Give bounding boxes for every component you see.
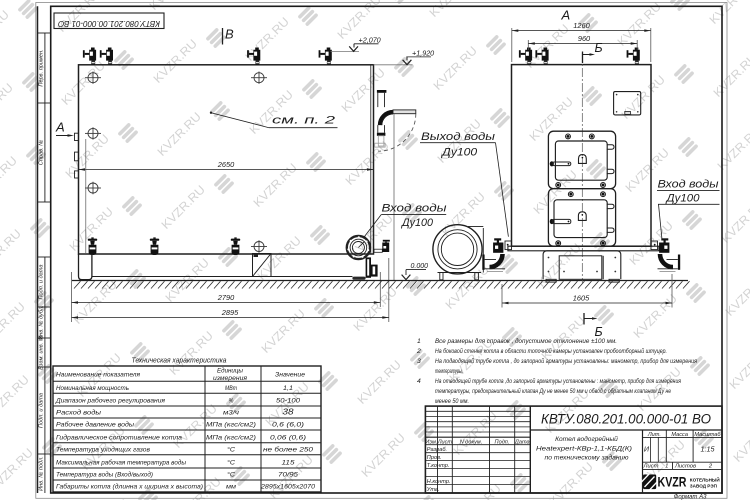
svg-text:Формат А3: Формат А3 [674, 494, 707, 500]
svg-text:0,06 (0,6): 0,06 (0,6) [270, 435, 306, 442]
svg-text:Масса: Масса [671, 432, 688, 438]
svg-text:115: 115 [282, 460, 295, 467]
svg-text:50-100: 50-100 [276, 398, 300, 405]
svg-text:В: В [225, 27, 234, 42]
svg-text:Т.контр.: Т.контр. [427, 463, 450, 469]
svg-text:Значение: Значение [275, 372, 305, 379]
svg-text:Н.контр.: Н.контр. [427, 479, 451, 485]
svg-text:Взам. инв. №: Взам. инв. № [38, 335, 44, 370]
svg-text:Масштаб: Масштаб [694, 432, 721, 438]
svg-text:мм: мм [226, 484, 236, 491]
svg-text:1:15: 1:15 [701, 445, 716, 454]
svg-text:А: А [55, 120, 65, 135]
svg-text:2: 2 [416, 348, 421, 355]
svg-text:Лист: Лист [437, 439, 453, 445]
svg-text:по техническому заданию: по техническому заданию [545, 454, 629, 462]
svg-text:Подп. и дата: Подп. и дата [38, 264, 44, 299]
svg-text:температуры.: температуры. [435, 368, 463, 375]
svg-text:1: 1 [417, 338, 421, 345]
svg-text:Гидравлическое сопротивление к: Гидравлическое сопротивление котла [56, 434, 182, 442]
svg-text:%: % [229, 398, 234, 405]
svg-text:Все размеры для справок , допу: Все размеры для справок , допустимое отк… [435, 337, 617, 345]
svg-text:Дата: Дата [514, 439, 530, 445]
svg-text:0,6 (6,0): 0,6 (6,0) [272, 422, 304, 429]
svg-text:КВТУ.080.201.00.000-01 ВО: КВТУ.080.201.00.000-01 ВО [58, 19, 160, 29]
svg-text:Пров.: Пров. [427, 455, 442, 461]
svg-text:Котел водогрейный: Котел водогрейный [555, 435, 618, 443]
svg-text:Рабочее давление воды: Рабочее давление воды [56, 421, 134, 429]
svg-text:Утв.: Утв. [426, 487, 440, 493]
svg-text:+2,070: +2,070 [359, 35, 381, 44]
svg-text:3: 3 [417, 358, 421, 365]
svg-text:70/95: 70/95 [278, 472, 298, 479]
svg-text:не более 250: не более 250 [263, 446, 313, 454]
svg-text:см. п. 2: см. п. 2 [272, 115, 335, 127]
svg-text:Подп. и дата: Подп. и дата [38, 393, 44, 428]
svg-text:Вход воды: Вход воды [658, 178, 719, 190]
svg-text:Выход воды: Выход воды [421, 131, 495, 143]
svg-text:°С: °С [227, 471, 235, 479]
svg-text:2650: 2650 [217, 160, 235, 169]
svg-text:N докум.: N докум. [460, 439, 483, 445]
svg-text:Лист: Лист [643, 464, 659, 470]
svg-text:1,1: 1,1 [283, 385, 293, 392]
svg-text:+1,920: +1,920 [412, 48, 434, 57]
svg-text:Изм.: Изм. [425, 439, 437, 445]
svg-text:Единицы: Единицы [217, 367, 243, 375]
svg-text:Диапазон рабочего регулировани: Диапазон рабочего регулирования [55, 397, 165, 405]
svg-text:Лит.: Лит. [647, 432, 661, 438]
svg-text:КВТУ.080.201.00.000-01 ВО: КВТУ.080.201.00.000-01 ВО [541, 412, 711, 427]
svg-text:0.000: 0.000 [411, 263, 429, 270]
svg-text:Техническая характеристика: Техническая характеристика [132, 355, 227, 364]
svg-text:Расход воды: Расход воды [56, 409, 101, 417]
svg-text:KVZR: KVZR [658, 474, 687, 489]
svg-text:м3/ч: м3/ч [223, 410, 240, 417]
svg-text:°С: °С [227, 459, 235, 467]
svg-text:Наименование показателя: Наименование показателя [56, 372, 140, 379]
svg-text:Ду100: Ду100 [664, 192, 700, 204]
svg-text:МВт: МВт [225, 385, 237, 392]
svg-text:Температура уходящих газов: Температура уходящих газов [56, 446, 150, 454]
svg-text:Номинальная мощность: Номинальная мощность [56, 385, 129, 392]
svg-text:Б: Б [595, 41, 603, 55]
svg-text:ЗАВОД РЭП: ЗАВОД РЭП [690, 484, 717, 489]
svg-text:На боковой стенке котла в обла: На боковой стенке котла в области топочн… [435, 347, 667, 355]
svg-text:2790: 2790 [217, 293, 235, 302]
svg-text:Heatexpert-КВр-1,1-КБД(К): Heatexpert-КВр-1,1-КБД(К) [536, 445, 632, 452]
svg-text:1605: 1605 [573, 293, 590, 302]
svg-text:Вход воды: Вход воды [382, 202, 447, 214]
svg-text:Перв. примен.: Перв. примен. [38, 49, 44, 86]
svg-text:МПа (кгс/см2): МПа (кгс/см2) [206, 435, 256, 442]
svg-text:На отводящей трубе котла ,до з: На отводящей трубе котла ,до запорной ар… [435, 377, 681, 385]
svg-text:Б: Б [595, 325, 603, 339]
svg-text:Инв. № подл.: Инв. № подл. [38, 456, 44, 491]
svg-text:Подп.: Подп. [495, 439, 510, 445]
svg-text:Разраб.: Разраб. [427, 447, 447, 453]
svg-text:Справ. №: Справ. № [38, 140, 44, 165]
svg-text:А: А [561, 8, 571, 23]
svg-text:4: 4 [417, 378, 421, 385]
svg-text:2895: 2895 [221, 308, 239, 317]
svg-text:960: 960 [578, 34, 591, 43]
svg-text:КОТЕЛЬНЫЙ: КОТЕЛЬНЫЙ [690, 475, 720, 482]
svg-text:38: 38 [283, 408, 295, 417]
svg-text:°С: °С [227, 446, 235, 454]
svg-text:Листов: Листов [674, 464, 696, 470]
svg-text:Габариты котла (длинна х ширин: Габариты котла (длинна х ширина х высота… [56, 483, 203, 491]
svg-text:На подводящей трубе котла , д: На подводящей трубе котла , до запорной … [435, 357, 697, 365]
svg-text:температуры, предохранительный: температуры, предохранительный клапан Ду… [435, 387, 671, 395]
svg-text:менее 50 мм.: менее 50 мм. [435, 398, 469, 405]
svg-text:Ду100: Ду100 [440, 146, 478, 158]
svg-text:2895х1605х2070: 2895х1605х2070 [260, 484, 315, 491]
svg-text:измерения: измерения [213, 375, 247, 382]
svg-text:1260: 1260 [573, 21, 590, 30]
svg-text:1: 1 [665, 464, 668, 470]
svg-text:Ду100: Ду100 [400, 217, 434, 229]
svg-text:И: И [644, 445, 650, 454]
svg-text:МПа (кгс/см2): МПа (кгс/см2) [206, 422, 256, 429]
svg-text:Инв. № дубл.: Инв. № дубл. [38, 305, 44, 339]
svg-text:Температура воды (Вход/выход): Температура воды (Вход/выход) [56, 471, 153, 479]
svg-text:Максимальная рабочая температу: Максимальная рабочая температура воды [56, 459, 186, 467]
